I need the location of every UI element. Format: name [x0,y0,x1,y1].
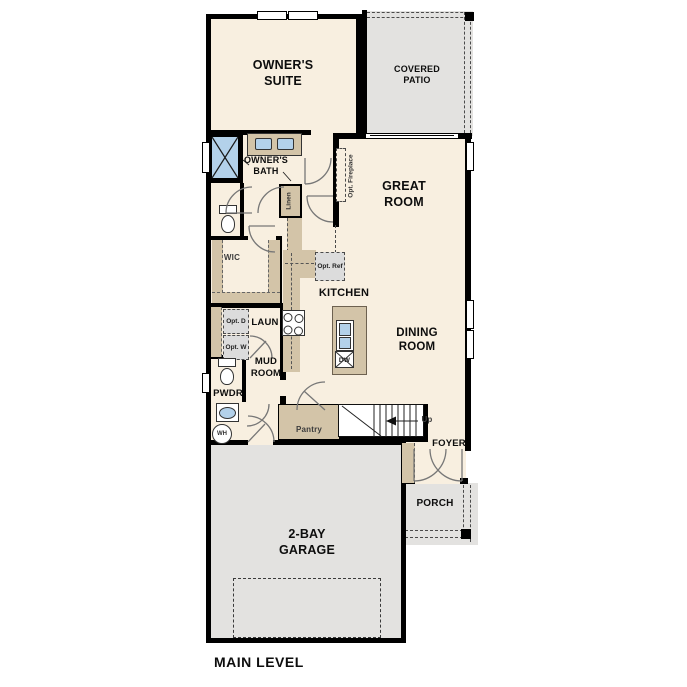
great-room-label: GREAT ROOM [369,179,439,210]
laundry-cabinet [211,307,222,357]
window-symbol [202,142,210,173]
window-symbol [466,300,474,329]
sink-icon [339,337,351,349]
window-symbol [466,330,474,359]
sink-icon [255,138,272,150]
window-symbol [202,373,210,393]
porch-dashed-edge [405,537,463,538]
cooktop-icon [282,310,305,336]
sliding-door-symbol [370,135,454,136]
shower-icon [210,135,240,180]
wall [362,10,367,136]
wall [465,139,471,451]
sliding-door-symbol [366,133,458,139]
laundry-label: LAUN [248,317,282,329]
kitchen-counter [283,250,316,278]
optional-dryer: Opt. D [223,309,249,334]
window-symbol [288,11,318,20]
toilet-icon [220,368,234,385]
water-heater-label: WH [217,431,227,437]
porch-dashed-edge [405,530,463,531]
opt-dryer-label: Opt. D [226,318,246,325]
pantry-label: Pantry [286,425,332,435]
kitchen-label: KITCHEN [314,287,374,301]
wall [206,638,406,643]
patio-column [465,12,474,21]
counter-dashed-line [285,263,314,264]
stairs-up-label: Up [419,415,435,425]
toilet-icon [219,205,237,214]
wic-label: WIC [218,253,246,263]
patio-dashed-edge [464,12,465,133]
powder-label: PWDR [210,388,246,400]
water-heater-icon: WH [212,424,232,444]
porch-column [461,529,471,539]
wall [333,437,428,442]
patio-dashed-edge [470,12,471,133]
garage-label: 2-BAY GARAGE [272,527,342,558]
door-opening [415,478,460,484]
closet-shelf [212,292,280,303]
linen-label: Linen [286,179,296,224]
covered-patio-label: COVERED PATIO [387,64,447,87]
sink-icon [219,407,236,419]
patio-dashed-edge [367,12,473,13]
wall [240,183,244,240]
open-plan-dashed-line [335,225,336,253]
closet-shelf [268,240,280,292]
toilet-icon [221,215,235,233]
window-symbol [466,142,474,171]
plan-title: MAIN LEVEL [214,654,334,672]
dining-room-label: DINING ROOM [387,326,447,355]
dishwasher-label: DW [334,357,355,365]
window-symbol [257,11,287,20]
foyer-closet [402,443,415,483]
floor-plan: Opt. Ref DW Opt. D Opt. W WH [0,0,687,687]
sink-icon [339,323,351,336]
staircase [338,404,424,437]
mud-room-label: MUD ROOM [246,356,286,380]
opt-ref-label: Opt. Ref [317,263,342,270]
sink-icon [277,138,294,150]
garage-door-outline [233,578,381,638]
optional-fireplace-box [336,148,346,202]
patio-dashed-edge [367,17,473,18]
owners-bath-label: OWNER'S BATH [238,155,294,178]
opt-fireplace-label: Opt. Fireplace [348,154,358,199]
owners-suite-label: OWNER'S SUITE [233,58,333,89]
optional-refrigerator: Opt. Ref [315,252,345,281]
foyer-label: FOYER [428,438,470,450]
door-opening [248,440,273,445]
opt-washer-label: Opt. W [226,344,247,351]
toilet-icon [218,358,236,367]
porch-label: PORCH [412,498,458,511]
